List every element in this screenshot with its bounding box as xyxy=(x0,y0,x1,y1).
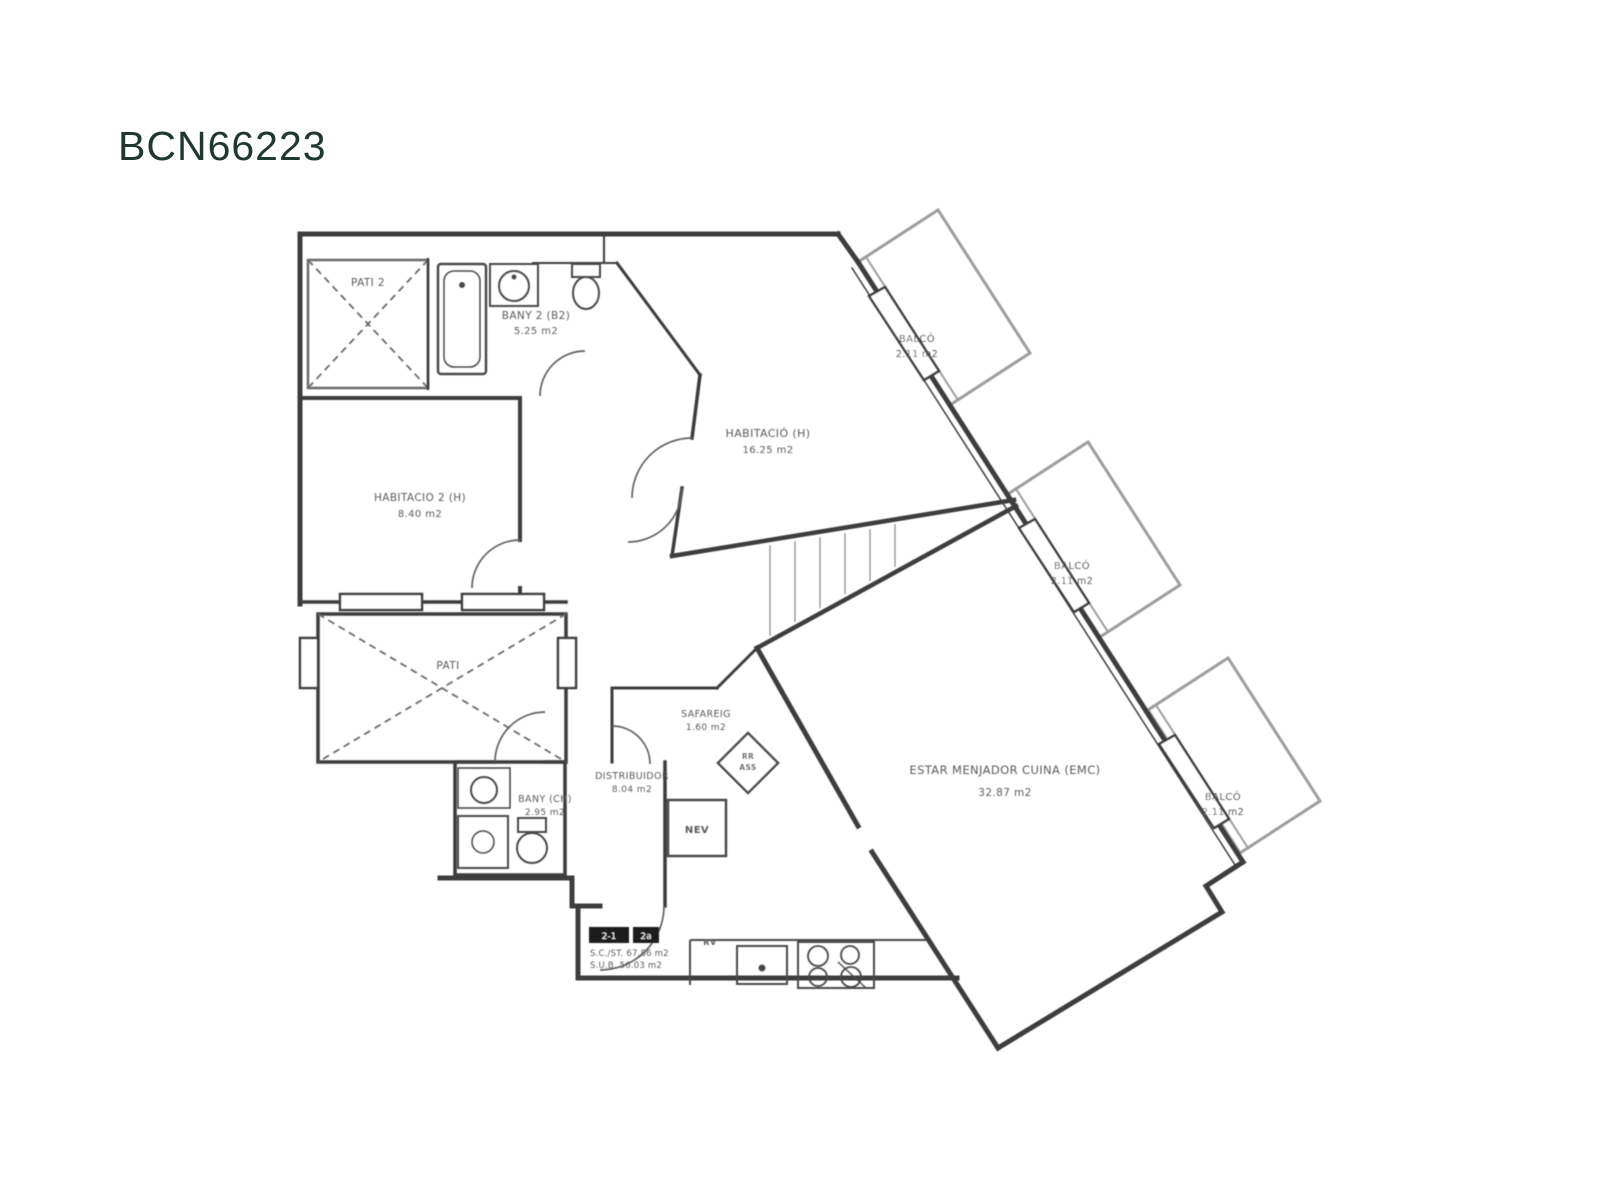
label-vent: RV xyxy=(703,938,717,947)
label-elevator-line2: ASS xyxy=(739,763,756,772)
bathtub-icon xyxy=(438,264,486,374)
label-habitacio-h: HABITACIÓ (H) xyxy=(726,427,811,440)
area-balco-3: 2.11 m2 xyxy=(1202,807,1244,818)
label-emc: ESTAR MENJADOR CUINA (EMC) xyxy=(909,763,1100,777)
toilet-icon-bottom xyxy=(517,818,547,863)
sink-corner-icon xyxy=(458,768,510,808)
wall-emc-southeast xyxy=(998,862,1243,1048)
wall-emc-southwest-lower xyxy=(872,852,998,1048)
wall-hab-h-west xyxy=(672,375,700,556)
wall-emc-northwest xyxy=(757,506,1016,648)
washing-machine-icon xyxy=(458,816,508,868)
area-balco-1: 2.11 m2 xyxy=(896,349,938,360)
wall-entry xyxy=(440,878,600,906)
label-safareig: SAFAREIG xyxy=(681,709,731,720)
stove-icon xyxy=(798,942,874,988)
area-balco-2: 2.11 m2 xyxy=(1051,576,1093,587)
label-elevator-line1: RR xyxy=(742,752,754,761)
label-bany-ch: BANY (CH) xyxy=(518,794,572,805)
unit-tag-left: 2-1 xyxy=(602,932,617,942)
window-pati-top-2 xyxy=(462,594,544,610)
label-pati: PATI xyxy=(436,660,459,672)
label-fridge: NEV xyxy=(685,825,709,836)
door-arc-safareig xyxy=(612,726,650,764)
floor-plan: 2-1 2a S.C./ST. 67.86 m2 S.U.B. 56.03 m2… xyxy=(0,0,1600,1200)
wall-bany2-diagonal xyxy=(617,263,700,375)
window-pati-left xyxy=(300,638,318,688)
entry-tag-group: 2-1 2a S.C./ST. 67.86 m2 S.U.B. 56.03 m2 xyxy=(589,927,669,971)
room-labels-group: PATI 2 BANY 2 (B2) 5.25 m2 HABITACIÓ (H)… xyxy=(351,277,1244,947)
area-emc: 32.87 m2 xyxy=(978,787,1032,799)
window-pati-top-1 xyxy=(340,594,422,610)
walls-group xyxy=(300,234,1243,1048)
label-balco-2: BALCÓ xyxy=(1054,559,1090,572)
stair-steps xyxy=(770,524,895,636)
toilet-icon-top xyxy=(572,264,600,309)
pati-cross xyxy=(318,614,566,762)
window-pati-right xyxy=(558,638,576,688)
windows-group xyxy=(300,287,1229,828)
label-distribuidor: DISTRIBUIDOR xyxy=(595,771,669,782)
label-balco-3: BALCÓ xyxy=(1205,790,1241,803)
area-distribuidor: 8.04 m2 xyxy=(612,785,652,795)
door-arc-bany2 xyxy=(540,351,585,396)
area-habitacio-h: 16.25 m2 xyxy=(742,445,793,456)
balconies-group xyxy=(858,210,1320,853)
unit-tag-right: 2a xyxy=(640,932,651,942)
label-habitacio2: HABITACIO 2 (H) xyxy=(374,492,466,504)
wall-emc-southwest-upper xyxy=(757,648,858,826)
wall-hab-h-south xyxy=(672,500,1014,556)
floor-plan-svg: 2-1 2a S.C./ST. 67.86 m2 S.U.B. 56.03 m2… xyxy=(0,0,1600,1200)
area-safareig: 1.60 m2 xyxy=(686,723,726,733)
area-habitacio2: 8.40 m2 xyxy=(398,509,442,520)
label-bany2: BANY 2 (B2) xyxy=(502,310,571,322)
wall-bany2-inner xyxy=(533,234,617,263)
label-balco-1: BALCÓ xyxy=(899,332,935,345)
sink-round-icon xyxy=(490,264,538,306)
label-pati2: PATI 2 xyxy=(351,277,385,289)
surface-line-1: S.C./ST. 67.86 m2 xyxy=(590,949,669,959)
area-bany2: 5.25 m2 xyxy=(514,326,558,337)
surface-line-2: S.U.B. 56.03 m2 xyxy=(590,961,662,971)
door-arc-bany-ch xyxy=(495,712,545,762)
wall-facade-jog xyxy=(838,234,858,262)
door-arc-hab2 xyxy=(472,540,520,588)
area-bany-ch: 2.95 m2 xyxy=(525,808,565,818)
